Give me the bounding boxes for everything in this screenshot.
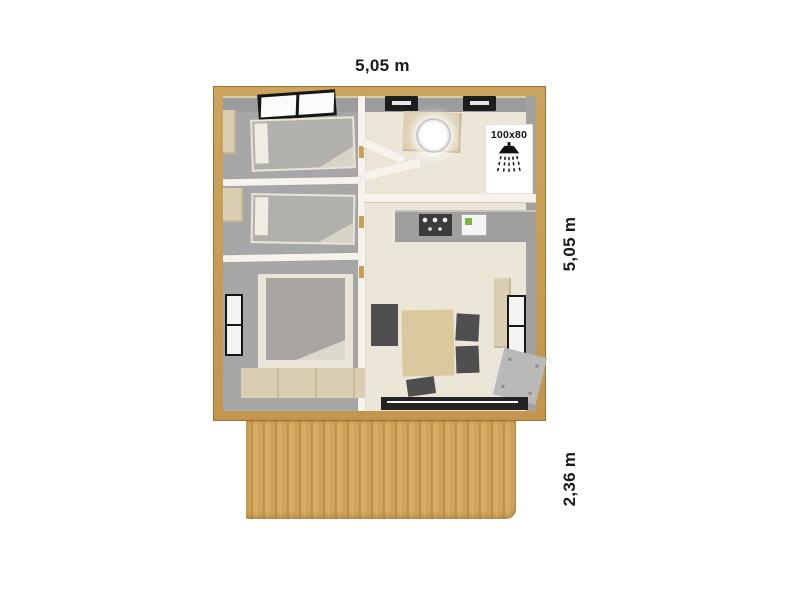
dining-table — [401, 310, 454, 377]
bed-pillow — [255, 197, 269, 235]
bathroom-window-2 — [463, 96, 496, 111]
kitchen-sink — [461, 214, 487, 236]
floor-plan-image: 5,05 m 5,05 m 2,36 m — [0, 0, 800, 604]
bathroom-south-wall — [364, 194, 536, 202]
terrace-dimension-label: 2,36 m — [560, 449, 580, 509]
cabin-interior: 100x80 — [223, 96, 536, 411]
entry-wall-angled — [363, 158, 421, 181]
wall-stud — [359, 146, 364, 158]
wall-stud — [359, 266, 364, 278]
wooden-terrace — [246, 421, 516, 519]
bed-pillow — [254, 123, 268, 163]
west-wall-window — [225, 294, 243, 356]
bed-fold — [319, 222, 353, 243]
bedroom2-desk — [223, 188, 243, 222]
bed-fold — [296, 340, 345, 360]
east-wall-window — [507, 295, 526, 357]
skylight-window — [257, 89, 337, 120]
window-pane — [261, 95, 296, 118]
master-bed-frame — [258, 274, 353, 378]
shower-icon — [494, 141, 524, 175]
bedroom2-bed — [251, 193, 356, 245]
window-pane — [298, 92, 333, 115]
bed-fold — [319, 146, 354, 167]
window-pane — [227, 326, 241, 354]
bedroom1-wardrobe — [223, 110, 236, 154]
master-bedroom-wardrobe — [241, 368, 365, 398]
dining-chair — [406, 376, 436, 397]
window-pane — [227, 296, 241, 324]
stove-hob — [419, 214, 452, 236]
entry-wall-angled — [362, 138, 406, 164]
shower-stall: 100x80 — [485, 124, 533, 194]
washbasin — [416, 118, 451, 153]
dining-chair — [456, 346, 480, 374]
dining-chair — [455, 313, 479, 341]
cabin-outline: 100x80 — [213, 86, 546, 421]
bathroom-window — [385, 96, 418, 111]
window-pane — [509, 297, 524, 325]
wall-stud — [359, 216, 364, 228]
tv-cabinet — [371, 304, 398, 346]
sliding-glass-door — [381, 397, 528, 410]
width-dimension-label: 5,05 m — [330, 56, 435, 76]
depth-dimension-label: 5,05 m — [560, 214, 580, 274]
shower-size-label: 100x80 — [491, 129, 527, 141]
bedroom1-bed — [250, 116, 356, 172]
